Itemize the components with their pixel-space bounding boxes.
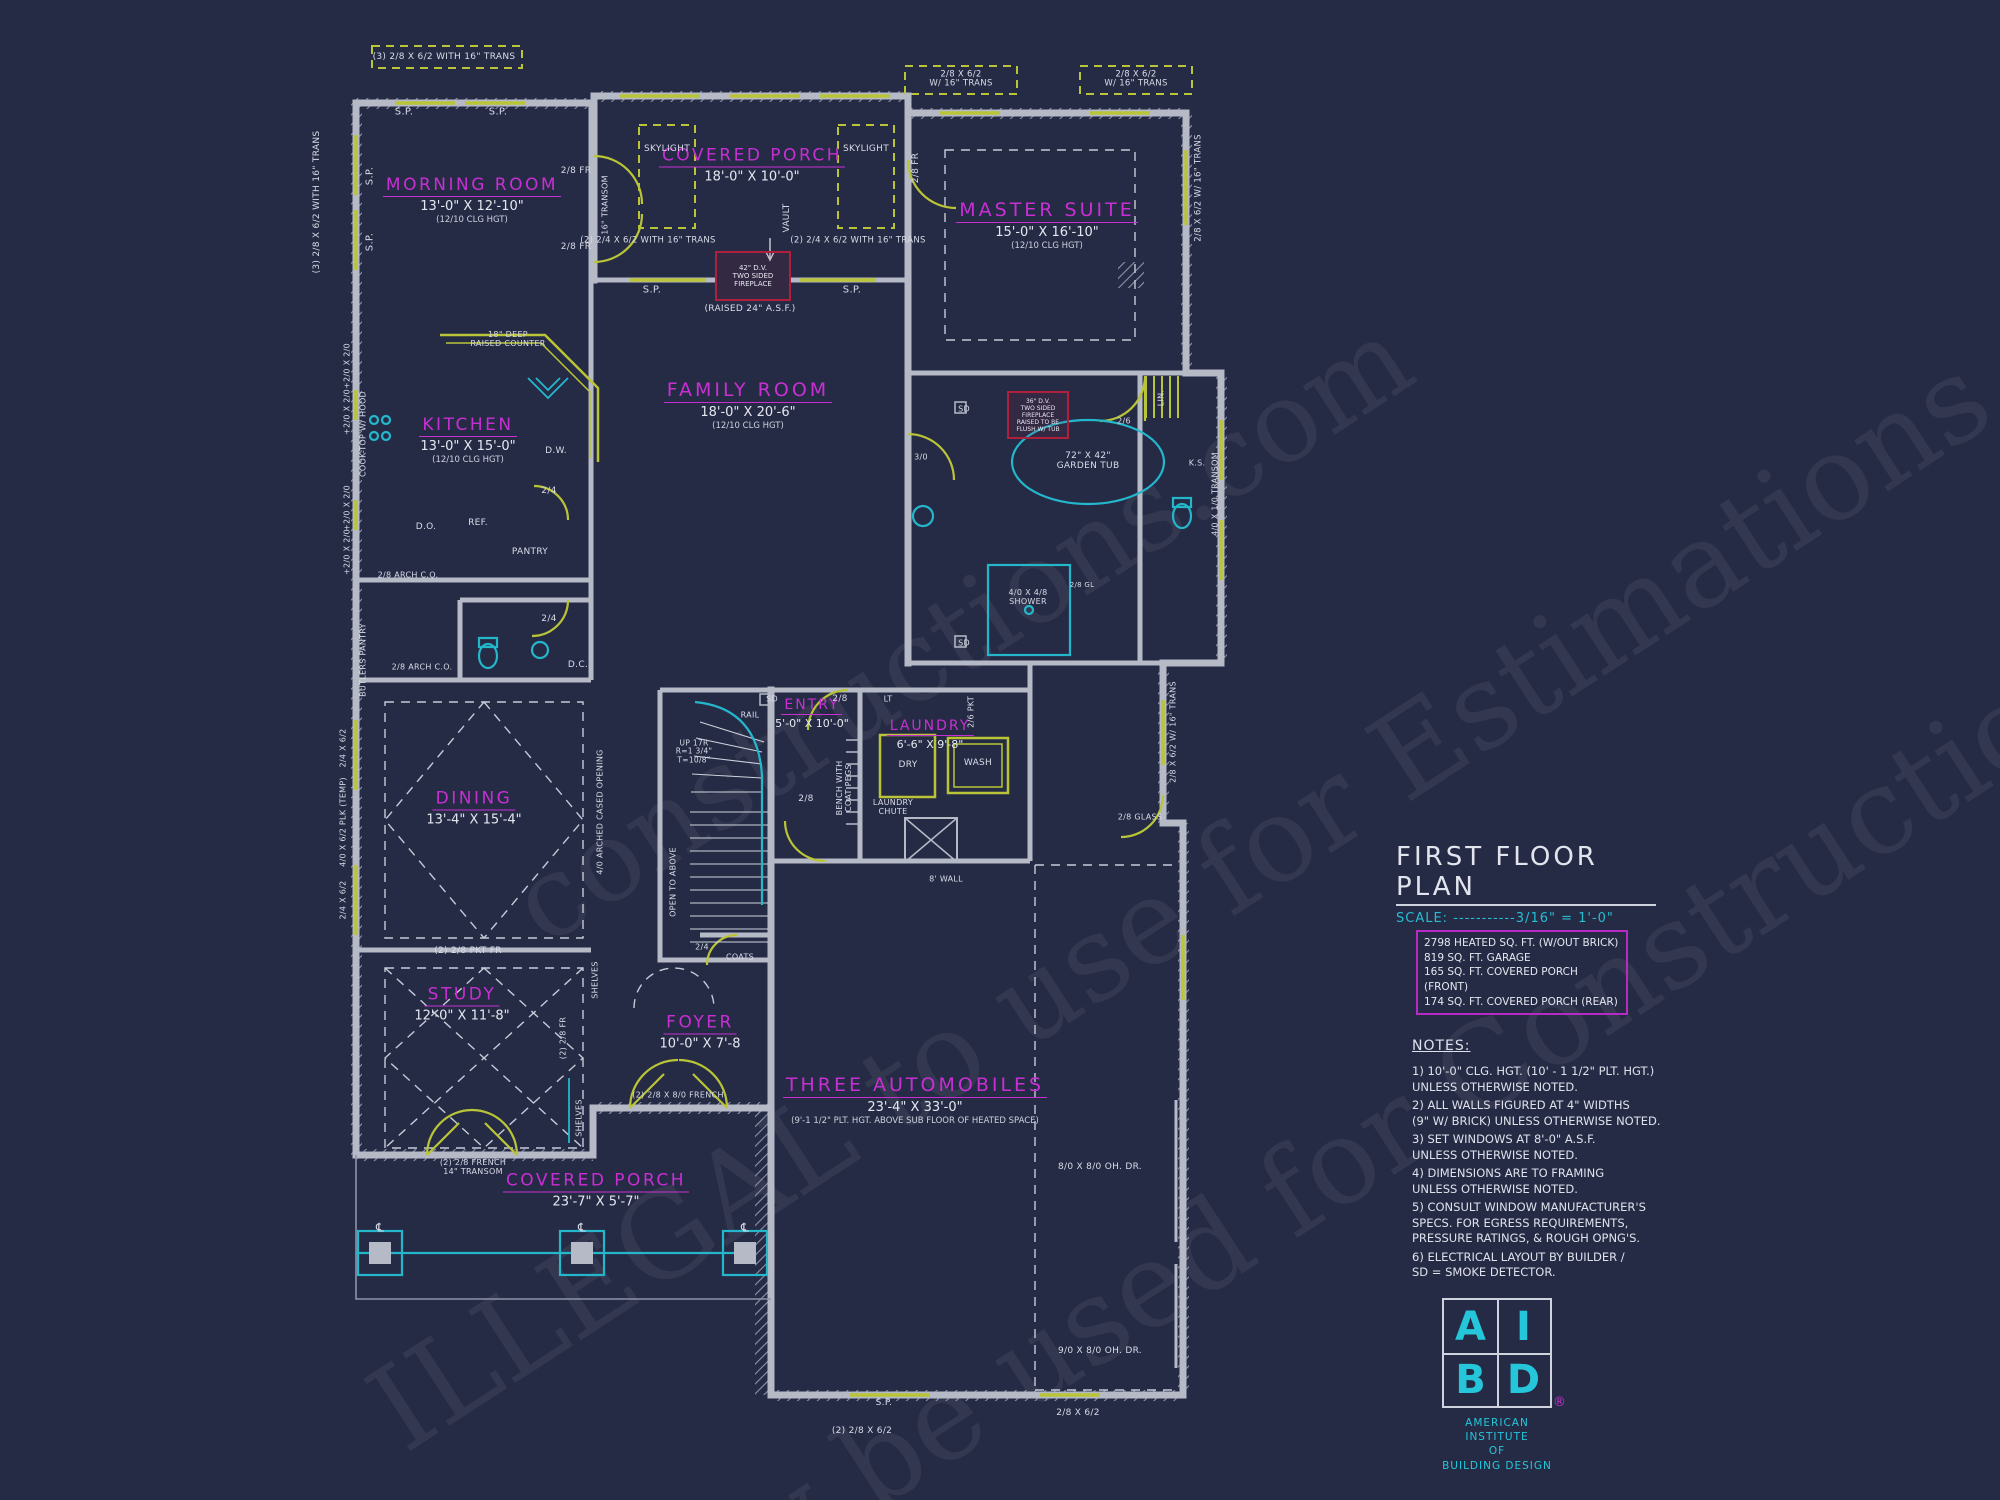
plan-scale: SCALE: -----------3/16" = 1'-0" xyxy=(1396,911,1656,926)
logo-letter-a: A xyxy=(1444,1300,1497,1353)
note-item: 2) ALL WALLS FIGURED AT 4" WIDTHS (9" W/… xyxy=(1412,1098,1702,1129)
square-footage-box: 2798 HEATED SQ. FT. (W/OUT BRICK) 819 SQ… xyxy=(1416,930,1628,1015)
note-item: 3) SET WINDOWS AT 8'-0" A.S.F. UNLESS OT… xyxy=(1412,1132,1702,1163)
registered-mark: ® xyxy=(1553,1395,1566,1410)
logo-letter-b: B xyxy=(1444,1353,1497,1406)
skylights xyxy=(372,46,1192,228)
note-item: 5) CONSULT WINDOW MANUFACTURER'S SPECS. … xyxy=(1412,1200,1702,1247)
note-item: 1) 10'-0" CLG. HGT. (10' - 1 1/2" PLT. H… xyxy=(1412,1064,1702,1095)
title-block: FIRST FLOOR PLAN SCALE: -----------3/16"… xyxy=(1396,842,1656,926)
stairs xyxy=(690,722,768,942)
aibd-logo-grid: A I B D ® xyxy=(1442,1298,1552,1408)
interior-walls xyxy=(356,103,1221,960)
logo-letter-d: D xyxy=(1497,1353,1550,1406)
logo-letter-i: I xyxy=(1497,1300,1550,1353)
notes-heading: NOTES: xyxy=(1412,1038,1702,1054)
floorplan-canvas: constructions.comILLEGAL to use for Esti… xyxy=(0,0,2000,1500)
note-item: 6) ELECTRICAL LAYOUT BY BUILDER / SD = S… xyxy=(1412,1250,1702,1281)
fireplace-master-bath: 36" D.V. TWO SIDED FIREPLACE RAISED TO B… xyxy=(1007,391,1069,439)
fireplace-family-room: 42" D.V. TWO SIDED FIREPLACE xyxy=(715,251,791,301)
aibd-logo: A I B D ® AMERICAN INSTITUTE OF BUILDING… xyxy=(1432,1298,1562,1473)
notes-block: NOTES: 1) 10'-0" CLG. HGT. (10' - 1 1/2"… xyxy=(1412,1038,1702,1284)
porch-outline xyxy=(356,1155,771,1299)
plan-title: FIRST FLOOR PLAN xyxy=(1396,842,1656,906)
note-item: 4) DIMENSIONS ARE TO FRAMING UNLESS OTHE… xyxy=(1412,1166,1702,1197)
aibd-org-name: AMERICAN INSTITUTE OF BUILDING DESIGN xyxy=(1432,1416,1562,1473)
